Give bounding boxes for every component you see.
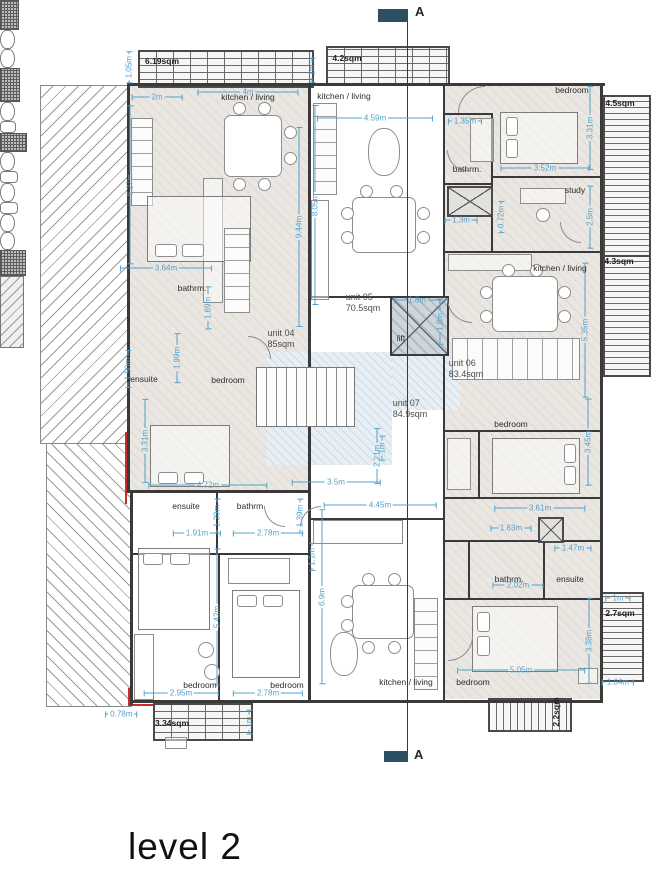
- neighbour-hatch-upper: [40, 85, 129, 444]
- chair: [388, 573, 401, 586]
- dt: 3.61m: [527, 504, 553, 513]
- room-label: lift: [397, 333, 406, 343]
- dl: [312, 568, 313, 570]
- dl: [590, 141, 591, 169]
- dt: 5.05m: [508, 666, 534, 675]
- dl: [588, 455, 589, 485]
- room-label: ensuite: [172, 501, 199, 511]
- dl: [318, 118, 362, 119]
- dl: [128, 351, 129, 356]
- plan-element: unit 06: [449, 358, 484, 369]
- section-letter-bottom: A: [414, 747, 423, 762]
- dl: [590, 87, 591, 115]
- w: [443, 598, 603, 600]
- dimension-label: 3.31m: [141, 399, 150, 483]
- dimension-label: 5.35m: [581, 262, 590, 397]
- dl: [315, 218, 316, 304]
- dl: [300, 499, 301, 502]
- section-flag-bottom: [384, 751, 408, 762]
- dl: [249, 710, 250, 714]
- dimension-label: 3.64m: [120, 264, 212, 273]
- dl: [524, 528, 531, 529]
- balcony-area-label: 4.5sqm: [605, 98, 634, 108]
- dl: [217, 499, 218, 502]
- toilet: [0, 214, 15, 232]
- wardrobe: [228, 558, 290, 584]
- dl: [208, 288, 209, 295]
- toilet: [0, 183, 15, 202]
- dimension-label: 4.72m: [148, 481, 267, 490]
- pillow: [143, 553, 163, 565]
- chair: [341, 595, 354, 608]
- dt: 6.9m: [318, 586, 327, 608]
- dl: [312, 78, 313, 82]
- dl: [382, 456, 383, 460]
- dimension-label: 1.47m: [554, 544, 591, 553]
- w: [443, 183, 493, 185]
- dt: 1.63m: [498, 524, 524, 533]
- dt: 3.45m: [584, 429, 593, 455]
- room-label: ensuite: [556, 574, 583, 584]
- dl: [590, 186, 591, 206]
- dl: [145, 400, 146, 428]
- dimension-label: 1.63m: [490, 524, 531, 533]
- dt: 0.78m: [108, 710, 134, 719]
- plan-element: 83.4sqm: [449, 369, 484, 380]
- dl: [121, 268, 153, 269]
- dl: [312, 544, 313, 546]
- room-label: bedroom: [183, 680, 217, 690]
- pillow: [506, 117, 518, 136]
- balcony-area-label: 2.2sqm: [551, 697, 561, 726]
- dimension-label: 3.52m: [500, 164, 589, 173]
- dt: 1.35m: [452, 117, 478, 126]
- dl: [501, 230, 502, 232]
- door: [264, 506, 285, 527]
- wardrobe: [447, 438, 471, 490]
- dl: [382, 436, 383, 440]
- sofa: [224, 228, 250, 313]
- balcony-bottom-step: [165, 737, 187, 749]
- w: [491, 176, 602, 178]
- dimension-label: 3.45m: [584, 398, 593, 485]
- dl: [626, 598, 630, 599]
- dining-table: [492, 276, 558, 332]
- dl: [249, 730, 250, 734]
- w: [130, 490, 133, 705]
- stair-core: [256, 367, 355, 427]
- balcony-top-middle: [326, 46, 450, 86]
- study-desk: [520, 188, 566, 204]
- chair: [233, 178, 246, 191]
- chair: [362, 641, 375, 654]
- w: [127, 83, 605, 86]
- dl: [501, 202, 502, 204]
- room-label: bathrm: [237, 501, 263, 511]
- dl: [177, 371, 178, 382]
- w: [443, 253, 445, 499]
- dimension-label: 1.1m: [308, 543, 317, 571]
- dimension-label: 1.8m: [436, 299, 445, 345]
- dt: 2.78m: [255, 529, 281, 538]
- dimension-label: 8.05m: [311, 105, 320, 305]
- wardrobe: [0, 276, 24, 348]
- dl: [174, 533, 184, 534]
- balcony-right-middle: [603, 255, 651, 377]
- dimension-label: 0.72m: [497, 215, 506, 233]
- dimension-label: 1.91m: [173, 529, 221, 538]
- pillow: [477, 636, 490, 656]
- chair: [258, 102, 271, 115]
- pillow: [506, 139, 518, 158]
- dl: [631, 682, 633, 683]
- dimension-label: 1.99m: [173, 333, 182, 383]
- plan-element: 85sqm: [267, 339, 294, 350]
- dl: [149, 485, 195, 486]
- kitchen-appliance: [0, 250, 26, 276]
- chair: [341, 231, 354, 244]
- kitchen-appliance: [0, 0, 19, 30]
- room-label: bedroom: [270, 680, 304, 690]
- dl: [395, 300, 406, 301]
- dl: [586, 548, 590, 549]
- dimension-label: 5.05m: [457, 666, 585, 675]
- dl: [315, 106, 316, 192]
- unit-label: unit 0683.4sqm: [449, 358, 484, 380]
- dimension-label: 1m: [605, 594, 630, 603]
- dt: 1.8m: [406, 296, 428, 305]
- pillow: [477, 612, 490, 632]
- dl: [312, 58, 313, 62]
- dt: 3.31m: [141, 428, 150, 454]
- toilet: [0, 102, 15, 121]
- w: [130, 490, 311, 493]
- dimension-label: 1.8m: [394, 296, 440, 305]
- dl: [217, 630, 218, 684]
- dt: 5.42m: [213, 604, 222, 630]
- dl: [128, 382, 129, 387]
- dt: 9.44m: [295, 214, 304, 240]
- dl: [588, 399, 589, 429]
- dt: 4.45m: [367, 501, 393, 510]
- plan-title: level 2: [128, 826, 242, 868]
- plan-element: unit 04: [267, 328, 294, 339]
- w: [443, 540, 603, 542]
- w: [443, 251, 602, 253]
- dt: 1.99m: [173, 345, 182, 371]
- dl: [322, 511, 323, 586]
- dl: [177, 334, 178, 345]
- dimension-label: 3.61m: [494, 504, 585, 513]
- w: [130, 700, 603, 703]
- dt: 4.59m: [362, 114, 388, 123]
- toilet: [0, 49, 15, 68]
- dimension-label: 4.59m: [317, 114, 433, 123]
- dimension-label: 4.45m: [324, 501, 437, 510]
- dt: 1.47m: [560, 544, 586, 553]
- room-label: kitchen / living: [533, 263, 586, 273]
- dt: 1m: [245, 714, 254, 729]
- dl: [493, 585, 504, 586]
- chair: [258, 178, 271, 191]
- dimension-label: 1.35m: [448, 117, 482, 126]
- section-flag-top: [378, 9, 408, 22]
- plan-element: unit 05: [346, 292, 381, 303]
- chair: [536, 208, 550, 222]
- dl: [179, 268, 211, 269]
- toilet: [0, 152, 15, 171]
- dl: [217, 549, 218, 603]
- room-label: kitchen / living: [379, 677, 432, 687]
- dl: [589, 599, 590, 628]
- dt: 1.3m: [450, 216, 472, 225]
- room-label: kitchen / living: [221, 92, 274, 102]
- dimension-label: 1m: [308, 57, 317, 82]
- dimension-label: 1.04m: [602, 678, 628, 687]
- dl: [590, 228, 591, 248]
- dl: [299, 128, 300, 214]
- balcony-area-label: 6.19sqm: [145, 56, 179, 66]
- balcony-area-label: 4.3sqm: [604, 256, 633, 266]
- section-letter-top: A: [415, 4, 424, 19]
- dimension-label: 3.31m: [586, 86, 595, 170]
- balcony-area-label: 4.2sqm: [332, 53, 361, 63]
- dimension-label: 0.78m: [105, 710, 125, 719]
- dimension-label: 2m: [132, 93, 183, 102]
- dl: [495, 508, 527, 509]
- chair: [388, 641, 401, 654]
- dl: [129, 52, 130, 54]
- chair: [417, 231, 430, 244]
- w: [468, 540, 470, 598]
- dl: [501, 168, 531, 169]
- pillow: [263, 595, 283, 607]
- stair-right-lower: [600, 592, 644, 682]
- coffee-table: [368, 128, 400, 176]
- dimension-label: 1.3m: [445, 216, 478, 225]
- shaft-box: [447, 186, 493, 217]
- coffee-table: [330, 632, 358, 676]
- dl: [134, 714, 136, 715]
- dl: [322, 608, 323, 683]
- unit-label: unit 0784.9sqm: [393, 398, 428, 420]
- dimension-label: 1.05m: [125, 57, 134, 84]
- chair: [341, 207, 354, 220]
- dining-table: [352, 585, 414, 639]
- kitchen-counter: [448, 254, 532, 271]
- toilet: [0, 30, 15, 49]
- room-label: bedroom: [456, 677, 490, 687]
- dt: 1m: [308, 62, 317, 77]
- chair: [480, 286, 493, 299]
- dl: [534, 670, 584, 671]
- dl: [145, 454, 146, 482]
- dl: [393, 505, 435, 506]
- chair: [341, 619, 354, 632]
- w: [443, 430, 602, 432]
- dimension-label: 9.44m: [295, 127, 304, 327]
- dimension-label: 1.69m: [204, 287, 213, 330]
- dt: 3.64m: [153, 264, 179, 273]
- plan-element: unit 07: [393, 398, 428, 409]
- room-label: bedroom: [555, 85, 589, 95]
- sink: [0, 171, 18, 183]
- dimension-label: 3.5m: [292, 478, 381, 487]
- shaft-box: [538, 517, 564, 543]
- dt: 1.69m: [204, 295, 213, 321]
- dimension-label: 1m: [378, 435, 387, 460]
- dl: [325, 505, 367, 506]
- pillow: [182, 244, 204, 257]
- dt: 1.05m: [125, 54, 134, 80]
- dimension-label: 2.78m: [233, 529, 303, 538]
- dimension-label: 2.5m: [586, 185, 595, 248]
- pillow: [237, 595, 257, 607]
- dimension-label: 3.38m: [585, 598, 594, 684]
- dimension-label: 6.27m: [126, 106, 135, 265]
- dl: [210, 533, 220, 534]
- dl: [388, 118, 432, 119]
- dimension-label: 5.42m: [213, 548, 222, 685]
- dt: 2m: [149, 93, 164, 102]
- dt: 1.39m: [296, 503, 305, 529]
- dt: 3.38m: [585, 628, 594, 654]
- dl: [208, 321, 209, 328]
- dl: [130, 107, 131, 172]
- dl: [281, 693, 302, 694]
- kitchen-appliance: [0, 133, 27, 152]
- room-label: bedroom: [494, 419, 528, 429]
- dt: 2.5m: [586, 206, 595, 228]
- room-label: bathrm.: [178, 283, 207, 293]
- chair: [390, 185, 403, 198]
- floor-plan: A A 2m4m1m1.05m6.27m4.59m8.05m9.44m1.35m…: [0, 0, 665, 877]
- w: [443, 497, 445, 703]
- unit-label: unit 0570.5sqm: [346, 292, 381, 314]
- balcony-area-label: 3.34sqm: [155, 718, 189, 728]
- sink: [0, 202, 18, 214]
- dl: [531, 585, 542, 586]
- dl: [299, 240, 300, 326]
- dt: 3.31m: [586, 115, 595, 141]
- dl: [458, 670, 508, 671]
- dl: [478, 121, 481, 122]
- chair: [480, 310, 493, 323]
- dt: 1.39m: [213, 503, 222, 529]
- dl: [440, 300, 441, 311]
- sink: [0, 121, 16, 133]
- plan-element: 84.9sqm: [393, 409, 428, 420]
- w: [443, 113, 493, 115]
- pillow: [564, 466, 576, 485]
- dl: [553, 508, 585, 509]
- dl: [377, 469, 378, 483]
- chair: [417, 207, 430, 220]
- dl: [585, 343, 586, 397]
- dl: [129, 80, 130, 82]
- dl: [221, 485, 267, 486]
- plan-element: 70.5sqm: [346, 303, 381, 314]
- dl: [165, 97, 182, 98]
- pillow: [564, 444, 576, 463]
- chair: [502, 264, 515, 277]
- chair: [360, 185, 373, 198]
- room-label: bedroom: [211, 375, 245, 385]
- chair: [233, 102, 246, 115]
- pillow: [155, 244, 177, 257]
- kitchen-appliance: [0, 68, 20, 102]
- room-label: bathrm.: [453, 164, 482, 174]
- dt: 1.8m: [436, 311, 445, 333]
- neighbour-hatch-lower: [46, 443, 132, 707]
- dt: 0.72m: [497, 204, 506, 230]
- room-label: ensuite: [130, 374, 157, 384]
- unit-label: unit 0485sqm: [267, 328, 294, 350]
- dl: [472, 220, 477, 221]
- w: [443, 83, 445, 253]
- dt: 1.91m: [184, 529, 210, 538]
- balcony-right-top: [603, 95, 651, 259]
- dt: 1.04m: [605, 678, 631, 687]
- dt: 1.1m: [308, 546, 317, 568]
- chair: [558, 310, 571, 323]
- dt: 8.05m: [311, 192, 320, 218]
- dt: 4.72m: [195, 481, 221, 490]
- dl: [234, 693, 255, 694]
- chair: [558, 286, 571, 299]
- dt: 1m: [378, 440, 387, 455]
- toilet: [0, 232, 15, 250]
- dimension-label: 1m: [245, 709, 254, 734]
- w: [443, 497, 602, 499]
- room-label: kitchen / living: [317, 91, 370, 101]
- w: [478, 432, 480, 497]
- dining-table: [224, 115, 282, 177]
- dt: 3.5m: [325, 478, 347, 487]
- room-label: bathrm.: [495, 574, 524, 584]
- dl: [440, 333, 441, 344]
- pillow: [170, 553, 190, 565]
- dl: [558, 168, 588, 169]
- dt: 6.27m: [126, 172, 135, 198]
- dl: [234, 533, 255, 534]
- dl: [130, 198, 131, 263]
- dt: 3.52m: [532, 164, 558, 173]
- dt: 1m: [610, 594, 625, 603]
- room-label: study: [565, 185, 585, 195]
- dl: [293, 482, 325, 483]
- dl: [194, 693, 217, 694]
- dimension-label: 6.9m: [318, 510, 327, 685]
- dt: 5.35m: [581, 317, 590, 343]
- dl: [145, 693, 168, 694]
- dl: [281, 533, 302, 534]
- dl: [133, 97, 150, 98]
- balcony-area-label: 2.7sqm: [605, 608, 634, 618]
- chair: [362, 573, 375, 586]
- kitchen-counter: [313, 520, 403, 544]
- dl: [589, 654, 590, 683]
